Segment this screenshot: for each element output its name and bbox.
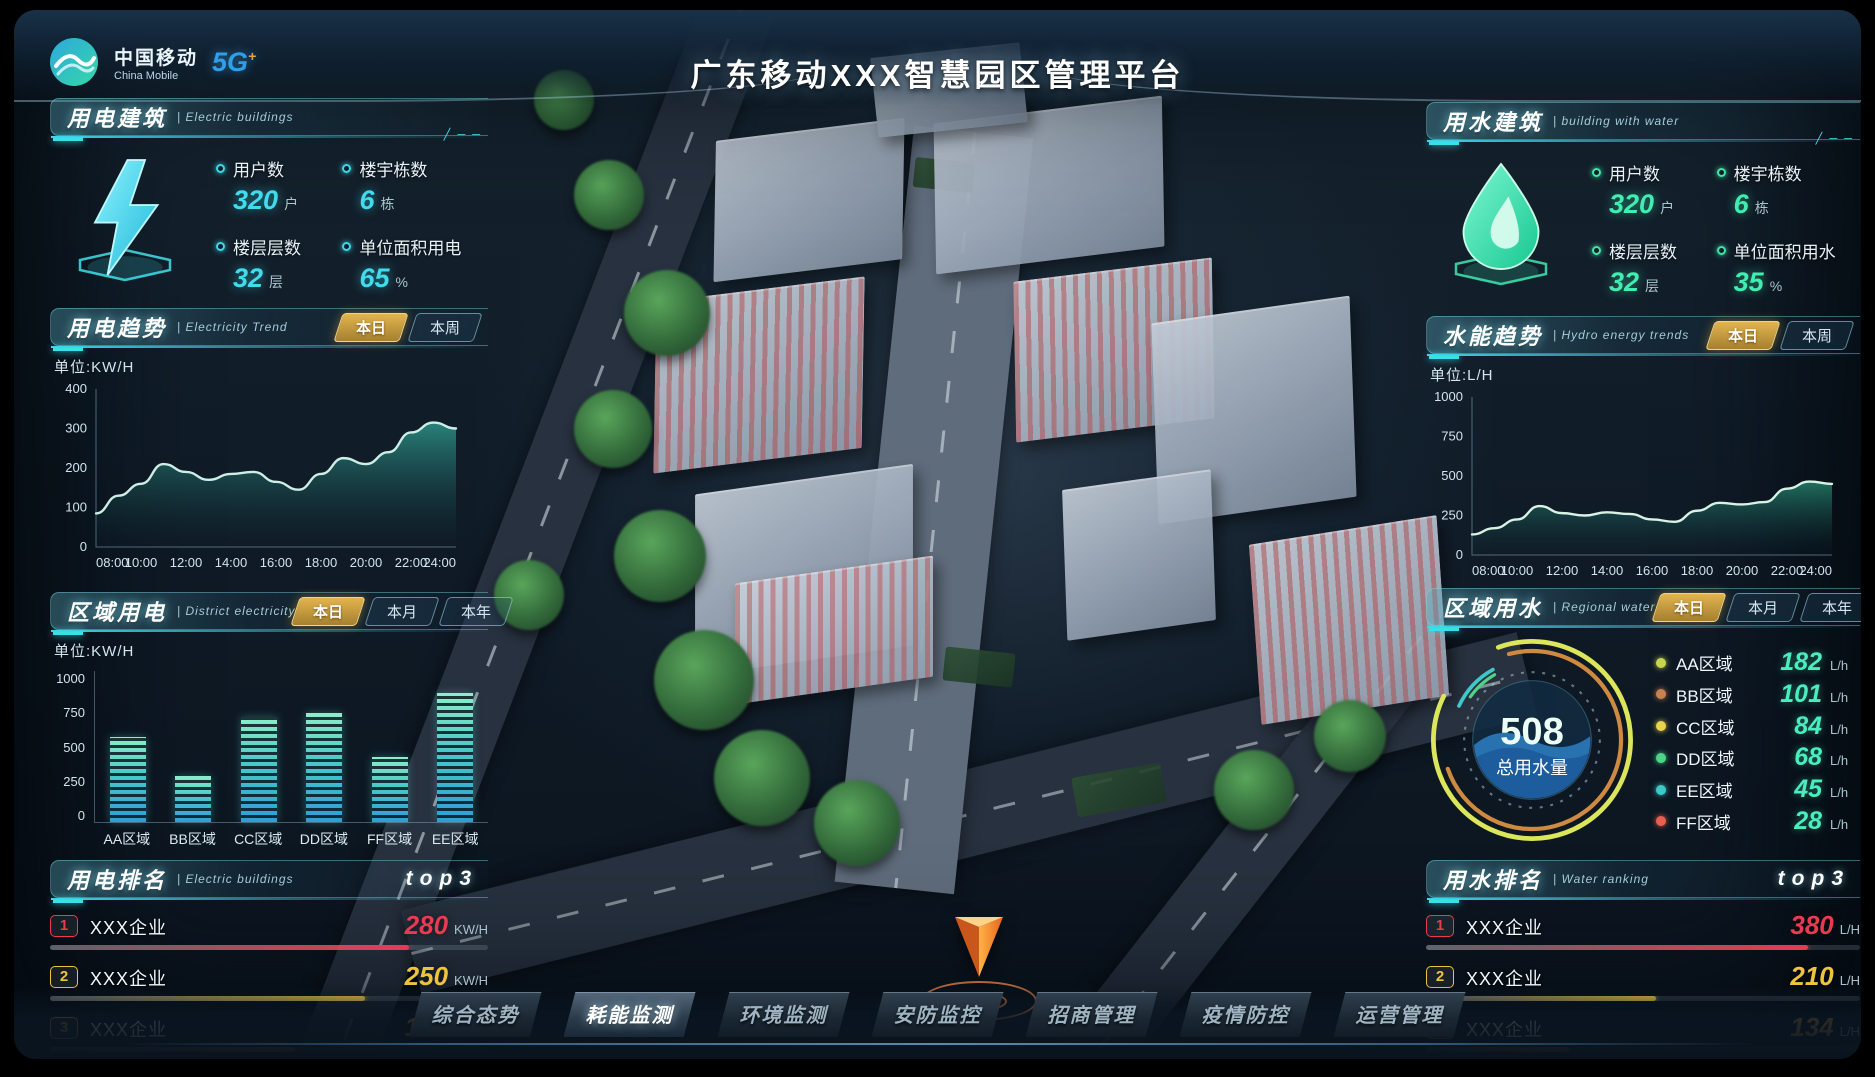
ranking-row: 1 XXX企业 280 KW/H bbox=[50, 910, 488, 950]
legend-dot-icon bbox=[1656, 721, 1666, 731]
stat-unit: 栋 bbox=[1755, 198, 1769, 218]
stat-label: 单位面积用电 bbox=[359, 234, 461, 259]
bar-category: FF区域 bbox=[357, 829, 423, 849]
water-total-gauge: 508总用水量 bbox=[1426, 634, 1638, 846]
panel-district-electricity: 区域用电 | District electricity 本日本月本年 单位:KW… bbox=[50, 592, 488, 849]
panel-title: 用电趋势 bbox=[67, 311, 167, 343]
legend-value: 182 bbox=[1780, 648, 1822, 677]
panel-subtitle: | District electricity bbox=[177, 604, 295, 618]
bar-category: DD区域 bbox=[291, 829, 357, 849]
ranking-row: 1 XXX企业 380 L/H bbox=[1426, 910, 1860, 950]
rank-value: 280 bbox=[405, 910, 448, 941]
legend-dot-icon bbox=[1656, 785, 1666, 795]
rank-name: XXX企业 bbox=[90, 914, 167, 940]
legend-value: 101 bbox=[1780, 680, 1822, 709]
legend-name: AA区域 bbox=[1676, 650, 1733, 675]
stat-label: 单位面积用水 bbox=[1734, 238, 1836, 263]
svg-text:16:00: 16:00 bbox=[1636, 563, 1669, 578]
panel-subtitle: | Hydro energy trends bbox=[1553, 328, 1689, 342]
stat-item: 楼宇栋数 6 栋 bbox=[342, 156, 488, 216]
svg-text:22:00: 22:00 bbox=[1771, 563, 1804, 578]
svg-text:总用水量: 总用水量 bbox=[1496, 758, 1568, 778]
svg-text:0: 0 bbox=[80, 539, 87, 554]
tab-本月[interactable]: 本月 bbox=[365, 597, 440, 626]
panel-header: 水能趋势 | Hydro energy trends 本日本周 bbox=[1426, 316, 1860, 354]
district-tabs: 本日本月本年 bbox=[295, 597, 509, 626]
stat-dot-icon bbox=[1592, 246, 1601, 255]
bar bbox=[110, 737, 146, 822]
panel-header: 用电建筑 | Electric buildings ╱ ─ ─ bbox=[50, 98, 488, 136]
rank-value: 380 bbox=[1790, 910, 1833, 941]
stat-unit: % bbox=[1770, 278, 1782, 294]
lightning-icon bbox=[50, 150, 200, 300]
panel-header: 用水建筑 | building with water ╱ ─ ─ bbox=[1426, 102, 1860, 140]
legend-name: CC区域 bbox=[1676, 714, 1735, 739]
panel-subtitle: | Water ranking bbox=[1553, 872, 1649, 886]
legend-name: DD区域 bbox=[1676, 745, 1735, 770]
unit-label: 单位:L/H bbox=[1430, 364, 1860, 385]
svg-text:14:00: 14:00 bbox=[1591, 563, 1624, 578]
panel-subtitle: | Electric buildings bbox=[177, 872, 294, 886]
bar-y-axis: 10007505002500 bbox=[50, 671, 94, 823]
rank-bar-track bbox=[50, 945, 488, 950]
rank-bar-fill bbox=[50, 945, 409, 950]
stat-label: 楼宇栋数 bbox=[359, 156, 427, 181]
svg-text:500: 500 bbox=[1441, 468, 1463, 483]
electricity-trend-chart: 010020030040008:0010:0012:0014:0016:0018… bbox=[50, 379, 466, 575]
hydro-tabs: 本日本周 bbox=[1710, 321, 1850, 350]
page-title: 广东移动XXX智慧园区管理平台 bbox=[14, 50, 1861, 95]
bar-column bbox=[95, 671, 161, 822]
stat-value: 320 bbox=[233, 185, 278, 216]
trend-tabs: 本日本周 bbox=[338, 313, 478, 342]
panel-water-buildings: 用水建筑 | building with water ╱ ─ ─ 用户数 320… bbox=[1426, 102, 1860, 304]
stat-item: 楼层层数 32 层 bbox=[216, 234, 332, 294]
stat-dot-icon bbox=[342, 242, 351, 251]
nav-item-招商管理[interactable]: 招商管理 bbox=[1026, 992, 1158, 1037]
svg-text:14:00: 14:00 bbox=[215, 555, 248, 570]
nav-item-安防监控[interactable]: 安防监控 bbox=[872, 992, 1004, 1037]
panel-header: 区域用电 | District electricity 本日本月本年 bbox=[50, 592, 488, 630]
legend-row: DD区域 68 L/h bbox=[1656, 743, 1860, 772]
legend-unit: L/h bbox=[1830, 785, 1860, 800]
legend-name: BB区域 bbox=[1676, 682, 1733, 707]
svg-text:10:00: 10:00 bbox=[1501, 563, 1534, 578]
stat-label: 楼层层数 bbox=[233, 234, 301, 259]
water-stats: 用户数 320 户 楼宇栋数 6 栋 楼层层数 32 层 单位面积用水 35 % bbox=[1576, 160, 1860, 298]
nav-item-疫情防控[interactable]: 疫情防控 bbox=[1180, 992, 1312, 1037]
svg-text:10:00: 10:00 bbox=[125, 555, 158, 570]
legend-unit: L/h bbox=[1830, 658, 1860, 673]
nav-item-耗能监测[interactable]: 耗能监测 bbox=[564, 992, 696, 1037]
stat-value: 320 bbox=[1609, 189, 1654, 220]
stat-unit: 栋 bbox=[380, 194, 394, 214]
bar-category: CC区域 bbox=[225, 829, 291, 849]
svg-text:08:00: 08:00 bbox=[1472, 563, 1505, 578]
svg-text:12:00: 12:00 bbox=[170, 555, 203, 570]
svg-text:12:00: 12:00 bbox=[1546, 563, 1579, 578]
regional-water-legend: AA区域 182 L/h BB区域 101 L/h CC区域 84 L/h DD… bbox=[1638, 634, 1860, 846]
svg-text:300: 300 bbox=[65, 421, 87, 436]
svg-text:100: 100 bbox=[65, 500, 87, 515]
bar-column bbox=[292, 671, 358, 822]
panel-header: 区域用水 | Regional water 本日本月本年 bbox=[1426, 588, 1860, 626]
stat-item: 单位面积用水 35 % bbox=[1717, 238, 1860, 298]
rank-badge: 1 bbox=[50, 915, 78, 937]
stat-unit: 户 bbox=[284, 194, 298, 214]
rank-unit: KW/H bbox=[454, 922, 488, 937]
district-electricity-chart: 10007505002500 AA区域BB区域CC区域DD区域FF区域EE区域 bbox=[50, 671, 488, 849]
rank-bar-fill bbox=[1426, 945, 1808, 950]
legend-unit: L/h bbox=[1830, 753, 1860, 768]
nav-item-环境监测[interactable]: 环境监测 bbox=[718, 992, 850, 1037]
svg-text:0: 0 bbox=[1456, 547, 1463, 562]
electric-stats: 用户数 320 户 楼宇栋数 6 栋 楼层层数 32 层 单位面积用电 65 % bbox=[200, 156, 488, 294]
legend-dot-icon bbox=[1656, 816, 1666, 826]
panel-title: 区域用水 bbox=[1443, 591, 1543, 623]
stat-label: 楼层层数 bbox=[1609, 238, 1677, 263]
svg-text:16:00: 16:00 bbox=[260, 555, 293, 570]
stat-item: 用户数 320 户 bbox=[216, 156, 332, 216]
svg-text:08:00: 08:00 bbox=[96, 555, 129, 570]
unit-label: 单位:KW/H bbox=[54, 640, 488, 661]
dashboard: 中国移动 China Mobile 5G+ 广东移动XXX智慧园区管理平台 用电… bbox=[0, 0, 1875, 1077]
svg-text:24:00: 24:00 bbox=[423, 555, 456, 570]
legend-value: 28 bbox=[1794, 807, 1822, 836]
stat-value: 65 bbox=[359, 263, 389, 294]
stat-dot-icon bbox=[1717, 246, 1726, 255]
legend-unit: L/h bbox=[1830, 722, 1860, 737]
tab-本年[interactable]: 本年 bbox=[1799, 593, 1861, 622]
bar bbox=[437, 693, 473, 822]
arrow-pin-icon bbox=[953, 915, 1005, 981]
bottom-nav: 综合态势耗能监测环境监测安防监控招商管理疫情防控运营管理 bbox=[410, 992, 1466, 1037]
bar bbox=[306, 713, 342, 822]
panel-subtitle: | Regional water bbox=[1553, 600, 1656, 614]
stat-item: 楼层层数 32 层 bbox=[1592, 238, 1707, 298]
tab-本日[interactable]: 本日 bbox=[291, 597, 366, 626]
panel-title: 用电建筑 bbox=[67, 101, 167, 133]
stat-dot-icon bbox=[342, 164, 351, 173]
stat-label: 用户数 bbox=[1609, 160, 1660, 185]
top3-badge: top3 bbox=[1778, 867, 1850, 891]
stat-unit: 层 bbox=[1645, 276, 1659, 296]
bar-category: BB区域 bbox=[160, 829, 226, 849]
panel-title: 用电排名 bbox=[67, 863, 167, 895]
legend-value: 45 bbox=[1794, 775, 1822, 804]
svg-text:18:00: 18:00 bbox=[305, 555, 338, 570]
svg-text:24:00: 24:00 bbox=[1799, 563, 1832, 578]
tab-本周[interactable]: 本周 bbox=[407, 313, 482, 342]
tab-本日[interactable]: 本日 bbox=[333, 313, 408, 342]
legend-row: FF区域 28 L/h bbox=[1656, 807, 1860, 836]
legend-row: CC区域 84 L/h bbox=[1656, 712, 1860, 741]
stat-item: 用户数 320 户 bbox=[1592, 160, 1707, 220]
svg-text:200: 200 bbox=[65, 460, 87, 475]
bar-category: AA区域 bbox=[94, 829, 160, 849]
svg-text:22:00: 22:00 bbox=[395, 555, 428, 570]
stat-label: 用户数 bbox=[233, 156, 284, 181]
legend-unit: L/h bbox=[1830, 817, 1860, 832]
water-drop-icon bbox=[1426, 154, 1576, 304]
regional-water-tabs: 本日本月本年 bbox=[1656, 593, 1861, 622]
stat-dot-icon bbox=[1717, 168, 1726, 177]
stat-dot-icon bbox=[1592, 168, 1601, 177]
tab-本周[interactable]: 本周 bbox=[1779, 321, 1854, 350]
panel-header: 用电排名 | Electric buildings top3 bbox=[50, 860, 488, 898]
panel-title: 用水建筑 bbox=[1443, 105, 1543, 137]
bar-column bbox=[226, 671, 292, 822]
bar-column bbox=[423, 671, 489, 822]
panel-hydro-trend: 水能趋势 | Hydro energy trends 本日本周 单位:L/H 0… bbox=[1426, 316, 1860, 588]
nav-item-综合态势[interactable]: 综合态势 bbox=[410, 992, 542, 1037]
stat-item: 楼宇栋数 6 栋 bbox=[1717, 160, 1860, 220]
legend-dot-icon bbox=[1656, 753, 1666, 763]
bar-category: EE区域 bbox=[422, 829, 488, 849]
rank-bar-track bbox=[1426, 945, 1860, 950]
legend-name: EE区域 bbox=[1676, 777, 1733, 802]
panel-title: 区域用电 bbox=[67, 595, 167, 627]
svg-text:20:00: 20:00 bbox=[350, 555, 383, 570]
svg-text:750: 750 bbox=[1441, 429, 1463, 444]
rank-badge: 1 bbox=[1426, 915, 1454, 937]
stat-value: 32 bbox=[1609, 267, 1639, 298]
rank-unit: L/H bbox=[1840, 922, 1860, 937]
stat-unit: 户 bbox=[1660, 198, 1674, 218]
panel-electricity-trend: 用电趋势 | Electricity Trend 本日本周 单位:KW/H 01… bbox=[50, 308, 488, 580]
stat-value: 32 bbox=[233, 263, 263, 294]
legend-unit: L/h bbox=[1830, 690, 1860, 705]
bar-category-labels: AA区域BB区域CC区域DD区域FF区域EE区域 bbox=[94, 829, 488, 849]
bar-plot bbox=[94, 671, 488, 823]
panel-regional-water: 区域用水 | Regional water 本日本月本年 508总用水量 AA区… bbox=[1426, 588, 1860, 846]
tab-本年[interactable]: 本年 bbox=[439, 597, 514, 626]
svg-text:250: 250 bbox=[1441, 508, 1463, 523]
stat-item: 单位面积用电 65 % bbox=[342, 234, 488, 294]
stat-value: 35 bbox=[1734, 267, 1764, 298]
legend-dot-icon bbox=[1656, 658, 1666, 668]
legend-value: 84 bbox=[1794, 712, 1822, 741]
bar bbox=[241, 717, 277, 822]
panel-electric-buildings: 用电建筑 | Electric buildings ╱ ─ ─ 用户数 320 … bbox=[50, 98, 488, 300]
stat-value: 6 bbox=[359, 185, 374, 216]
bar bbox=[372, 757, 408, 822]
svg-text:508: 508 bbox=[1500, 710, 1564, 753]
panel-subtitle: | Electricity Trend bbox=[177, 320, 288, 334]
svg-text:400: 400 bbox=[65, 381, 87, 396]
tab-本日[interactable]: 本日 bbox=[1705, 321, 1780, 350]
nav-item-运营管理[interactable]: 运营管理 bbox=[1334, 992, 1466, 1037]
stat-unit: % bbox=[395, 274, 407, 290]
top3-badge: top3 bbox=[406, 867, 478, 891]
svg-text:20:00: 20:00 bbox=[1726, 563, 1759, 578]
rank-name: XXX企业 bbox=[1466, 914, 1543, 940]
bar-column bbox=[161, 671, 227, 822]
panel-header: 用水排名 | Water ranking top3 bbox=[1426, 860, 1860, 898]
panel-title: 水能趋势 bbox=[1443, 319, 1543, 351]
unit-label: 单位:KW/H bbox=[54, 356, 488, 377]
svg-text:18:00: 18:00 bbox=[1681, 563, 1714, 578]
legend-value: 68 bbox=[1794, 743, 1822, 772]
stat-unit: 层 bbox=[269, 272, 283, 292]
panel-header: 用电趋势 | Electricity Trend 本日本周 bbox=[50, 308, 488, 346]
legend-name: FF区域 bbox=[1676, 809, 1731, 834]
stat-dot-icon bbox=[216, 164, 225, 173]
legend-row: BB区域 101 L/h bbox=[1656, 680, 1860, 709]
tab-本日[interactable]: 本日 bbox=[1651, 593, 1726, 622]
hydro-trend-chart: 0250500750100008:0010:0012:0014:0016:001… bbox=[1426, 387, 1842, 583]
legend-row: EE区域 45 L/h bbox=[1656, 775, 1860, 804]
board: 中国移动 China Mobile 5G+ 广东移动XXX智慧园区管理平台 用电… bbox=[14, 10, 1861, 1059]
stat-label: 楼宇栋数 bbox=[1734, 160, 1802, 185]
svg-text:1000: 1000 bbox=[1434, 389, 1463, 404]
panel-title: 用水排名 bbox=[1443, 863, 1543, 895]
tab-本月[interactable]: 本月 bbox=[1725, 593, 1800, 622]
bar-column bbox=[357, 671, 423, 822]
bar bbox=[175, 776, 211, 822]
panel-subtitle: | Electric buildings bbox=[177, 110, 294, 124]
legend-row: AA区域 182 L/h bbox=[1656, 648, 1860, 677]
legend-dot-icon bbox=[1656, 689, 1666, 699]
stat-value: 6 bbox=[1734, 189, 1749, 220]
panel-subtitle: | building with water bbox=[1553, 114, 1679, 128]
stat-dot-icon bbox=[216, 242, 225, 251]
